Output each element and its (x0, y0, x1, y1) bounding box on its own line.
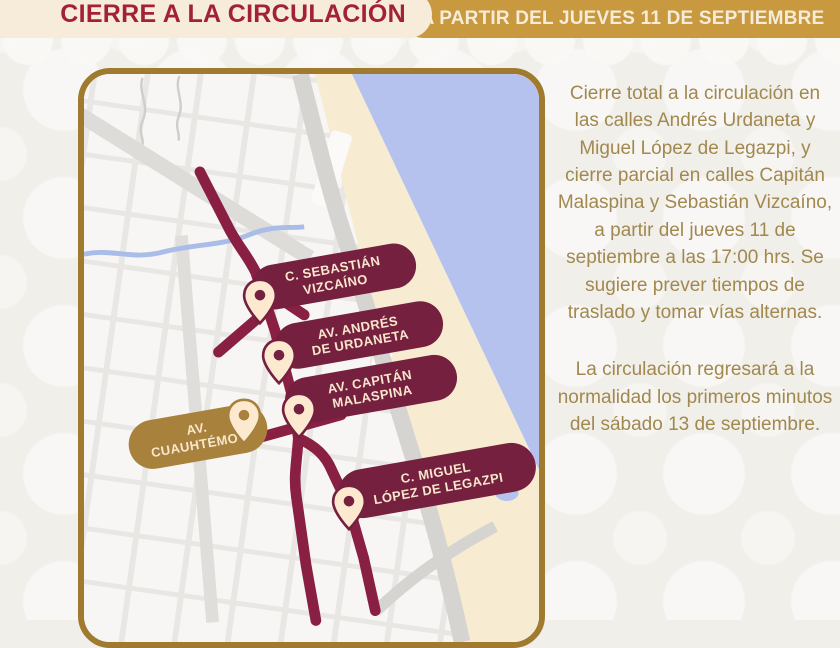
info-column: Cierre total a la circulación en las cal… (556, 80, 834, 468)
header-subtitle: A PARTIR DEL JUEVES 11 DE SEPTIEMBRE (421, 8, 825, 30)
page-title: CIERRE A LA CIRCULACIÓN (60, 0, 406, 29)
closure-map: C. SEBASTIÁN VIZCAÍNO AV. ANDRÉS DE URDA… (78, 68, 545, 648)
map-pin-cuauhtemoc-icon (226, 398, 262, 445)
header-subtitle-band: A PARTIR DEL JUEVES 11 DE SEPTIEMBRE (405, 0, 840, 38)
map-pin-urdaneta-icon (261, 338, 297, 385)
reopening-description: La circulación regresará a la normalidad… (556, 356, 834, 438)
map-pin-legazpi-icon (331, 484, 367, 531)
scallop-border-decoration (0, 38, 840, 68)
map-pin-vizcaino-icon (242, 278, 278, 325)
header-title-band: CIERRE A LA CIRCULACIÓN (0, 0, 432, 38)
closure-description: Cierre total a la circulación en las cal… (556, 80, 834, 326)
map-pin-malaspina-icon (281, 392, 317, 439)
